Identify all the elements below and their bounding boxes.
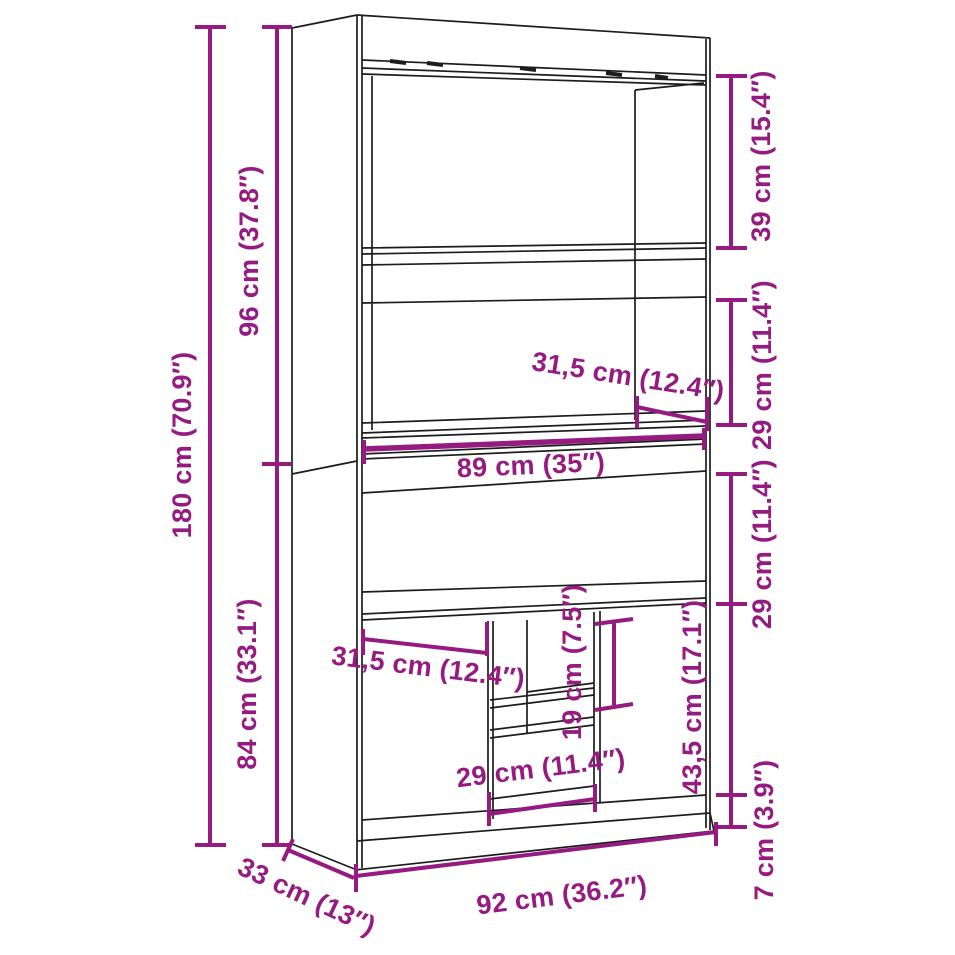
dim-label-worktop-depth: 31,5 cm (12.4″) [530, 346, 727, 406]
dim-shelf-compartment-height: 29 cm (11.4″) [716, 280, 777, 450]
dim-overall-height: 180 cm (70.9″) [167, 27, 226, 845]
dim-label-door-width: 31,5 cm (12.4″) [330, 640, 527, 693]
dim-label-shelf-compartment: 29 cm (11.4″) [747, 280, 777, 450]
dim-label-shelf-spacing: 19 cm (7.5″) [557, 584, 587, 740]
cabinet-lower-top [362, 581, 706, 620]
dimension-annotations: 180 cm (70.9″) 96 cm (37.8″) 84 cm (33.1… [167, 27, 779, 941]
dim-label-overall-height: 180 cm (70.9″) [167, 352, 197, 539]
diagram-canvas: 180 cm (70.9″) 96 cm (37.8″) 84 cm (33.1… [0, 0, 955, 955]
dimension-diagram: 180 cm (70.9″) 96 cm (37.8″) 84 cm (33.1… [0, 0, 955, 955]
dim-line-niche-height [716, 474, 747, 604]
dim-line-plinth-height [716, 795, 747, 827]
dim-label-top-compartment: 39 cm (15.4″) [746, 70, 776, 241]
dim-label-worktop-width: 89 cm (35″) [456, 447, 605, 483]
dim-worktop-depth: 31,5 cm (12.4″) [530, 346, 727, 431]
dim-line-overall-height [195, 27, 226, 845]
dim-label-niche-height: 29 cm (11.4″) [747, 459, 777, 629]
dim-label-plinth-height: 7 cm (3.9″) [749, 760, 779, 901]
dim-label-lower-section: 84 cm (33.1″) [232, 598, 262, 769]
dim-line-lower-section [262, 464, 292, 845]
dim-label-middle-compartment-width: 29 cm (11.4″) [455, 743, 627, 793]
dim-line-door-height [716, 604, 747, 795]
dim-line-top-compartment [716, 76, 747, 248]
dim-niche-height: 29 cm (11.4″) [716, 459, 777, 629]
dim-middle-compartment-width: 29 cm (11.4″) [455, 743, 627, 826]
dim-label-upper-section: 96 cm (37.8″) [234, 165, 264, 336]
dim-upper-section-height: 96 cm (37.8″) [234, 27, 292, 464]
dim-label-door-height: 43,5 cm (17.1″) [677, 600, 707, 795]
dim-line-shelf-compartment [716, 300, 747, 425]
dim-door-width: 31,5 cm (12.4″) [330, 622, 527, 694]
dim-line-upper-section [262, 27, 292, 464]
dim-plinth-height: 7 cm (3.9″) [716, 760, 779, 901]
cabinet-side-panel [292, 15, 372, 870]
dim-overall-depth: 33 cm (13″) [233, 839, 380, 941]
dim-top-compartment-height: 39 cm (15.4″) [716, 70, 776, 248]
dim-lower-section-height: 84 cm (33.1″) [232, 464, 292, 845]
dim-line-overall-width [356, 822, 716, 892]
dim-label-overall-depth: 33 cm (13″) [233, 851, 380, 941]
dim-label-overall-width: 92 cm (36.2″) [475, 870, 649, 921]
dim-door-height: 43,5 cm (17.1″) [677, 600, 747, 795]
cabinet-upper-shelves [362, 243, 706, 303]
